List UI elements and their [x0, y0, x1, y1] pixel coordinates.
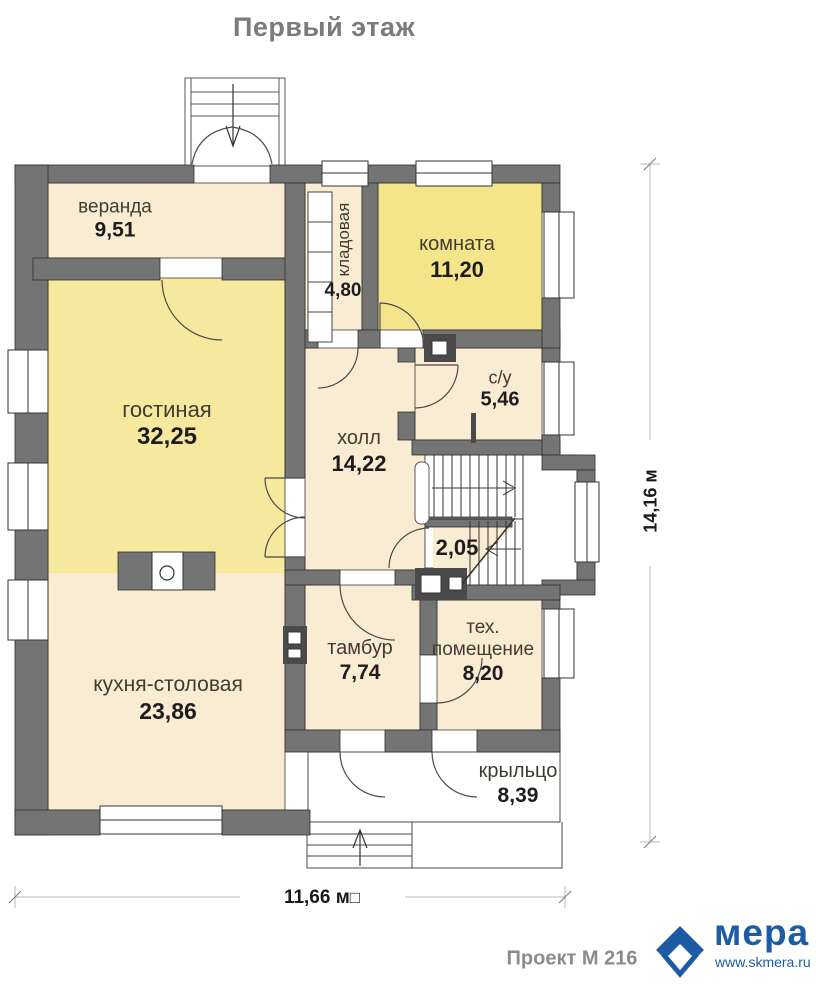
dimension-width-label: 11,66 м□: [284, 887, 360, 909]
room-area: 14,22: [331, 451, 386, 477]
room-label-porch: крыльцо 8,39: [479, 760, 558, 808]
room-area: 23,86: [93, 698, 243, 725]
room-name: тамбур: [327, 637, 393, 661]
dimension-height-label: 14,16 м: [641, 469, 662, 532]
room-name: крыльцо: [479, 760, 558, 784]
room-name: комната: [419, 233, 495, 257]
room-label-gostinaya: гостиная 32,25: [122, 397, 211, 451]
room-area: 11,20: [419, 257, 495, 283]
room-label-kladovaya: кладовая: [307, 230, 381, 251]
room-name: гостиная: [122, 397, 211, 423]
floor-plan-drawing: [0, 0, 816, 990]
room-label-tech: тех. помещение 8,20: [423, 617, 543, 687]
room-area: 4,80: [325, 280, 362, 302]
room-name: кухня-столовая: [93, 673, 243, 698]
room-area: 2,05: [436, 535, 479, 561]
room-area: 5,46: [481, 389, 520, 413]
brand-name: мера: [714, 912, 809, 954]
room-area: 7,74: [327, 660, 393, 685]
project-label: Проект М 216: [507, 948, 638, 971]
room-area: 8,20: [423, 662, 543, 687]
storage-shelves: [308, 192, 332, 342]
entry-steps: [185, 78, 285, 166]
room-label-veranda: веранда 9,51: [78, 196, 152, 243]
room-name: холл: [331, 427, 386, 451]
room-name: веранда: [78, 196, 152, 218]
room-label-kitchen: кухня-столовая 23,86: [93, 673, 243, 725]
room-name: с/у: [481, 368, 520, 389]
room-area-kladovaya: 4,80: [325, 280, 362, 302]
fireplace: [118, 552, 215, 590]
room-label-holl: холл 14,22: [331, 427, 386, 477]
room-label-understairs: 2,05: [436, 535, 479, 561]
room-area: 8,39: [479, 783, 558, 808]
room-label-komnata: комната 11,20: [419, 233, 495, 283]
website-url: www.skmera.ru: [715, 954, 811, 970]
room-name: кладовая: [334, 203, 354, 277]
floor-plan-page: Первый этаж: [0, 0, 816, 990]
dimension-width-value: 11,66 м: [284, 887, 350, 908]
missing-glyph-box: □: [350, 888, 360, 907]
room-label-tambur: тамбур 7,74: [327, 637, 393, 685]
room-label-su: с/у 5,46: [481, 368, 520, 413]
room-area: 32,25: [122, 423, 211, 451]
company-logo: мера www.skmera.ru: [652, 918, 814, 984]
room-name: тех. помещение: [423, 617, 543, 662]
logo-mark-icon: [652, 920, 710, 980]
room-area: 9,51: [78, 219, 152, 244]
